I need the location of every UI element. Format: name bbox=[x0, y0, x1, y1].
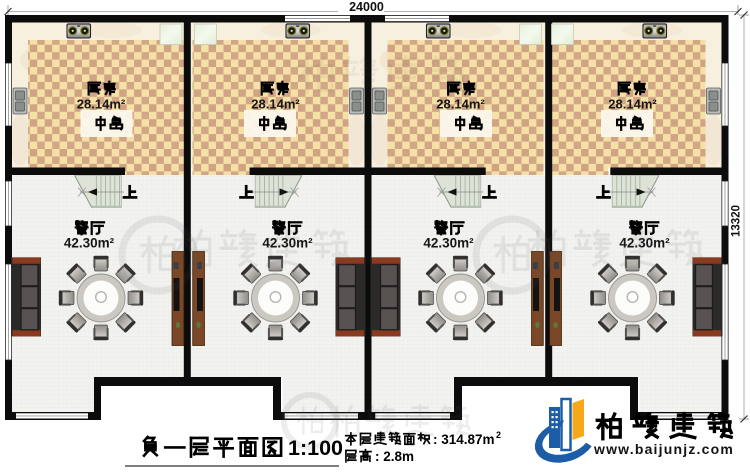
svg-text:www.baijunjz.com: www.baijunjz.com bbox=[593, 441, 734, 457]
svg-text:13320: 13320 bbox=[730, 205, 742, 237]
svg-text:24000: 24000 bbox=[349, 0, 384, 14]
svg-text:28.14m²: 28.14m² bbox=[436, 97, 485, 112]
svg-text:42.30m²: 42.30m² bbox=[64, 236, 115, 251]
svg-text:28.14m²: 28.14m² bbox=[77, 97, 126, 112]
svg-text:28.14m²: 28.14m² bbox=[608, 97, 657, 112]
svg-text:28.14m²: 28.14m² bbox=[251, 97, 300, 112]
svg-text:42.30m²: 42.30m² bbox=[423, 236, 474, 251]
svg-text:2: 2 bbox=[496, 430, 501, 440]
svg-text:: 2.8m: : 2.8m bbox=[375, 449, 414, 464]
